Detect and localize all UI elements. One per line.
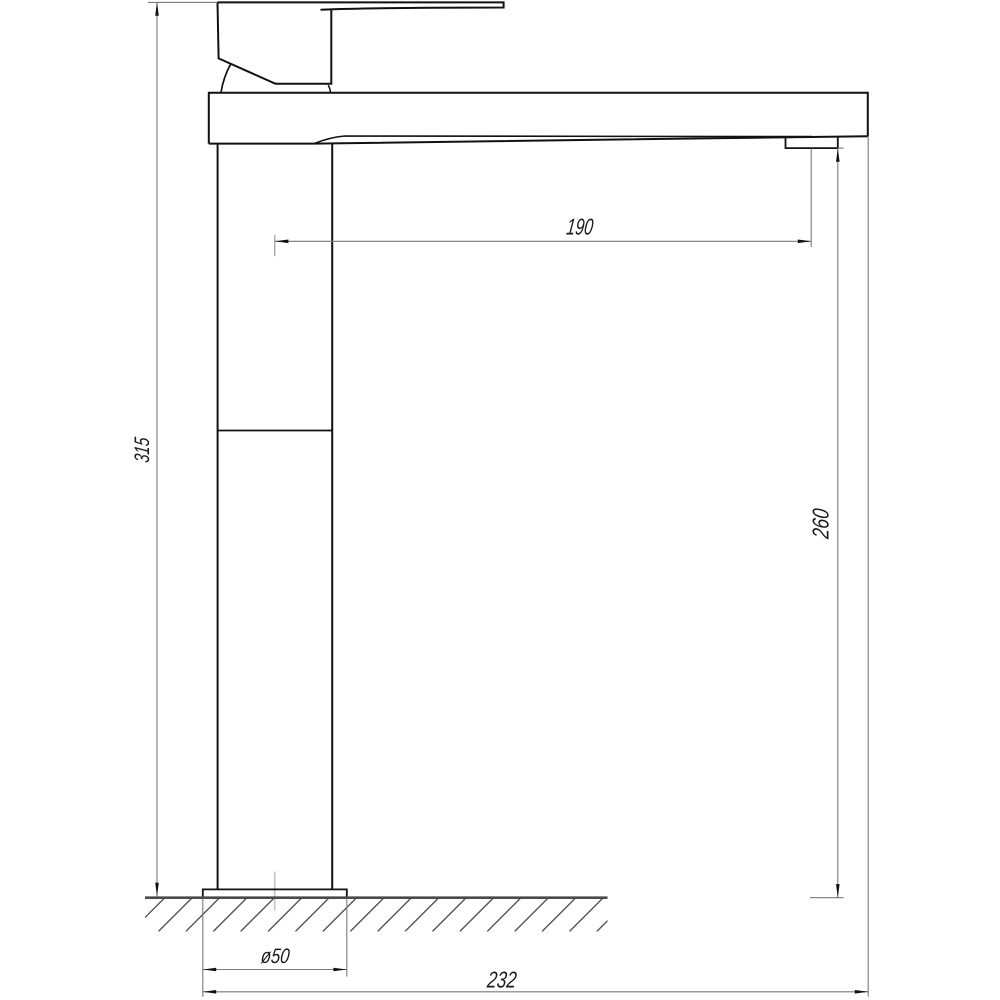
svg-text:ø50: ø50 [260,945,292,968]
svg-text:260: 260 [808,507,834,541]
svg-text:315: 315 [131,436,154,464]
svg-text:190: 190 [565,214,595,240]
svg-text:232: 232 [485,967,518,993]
